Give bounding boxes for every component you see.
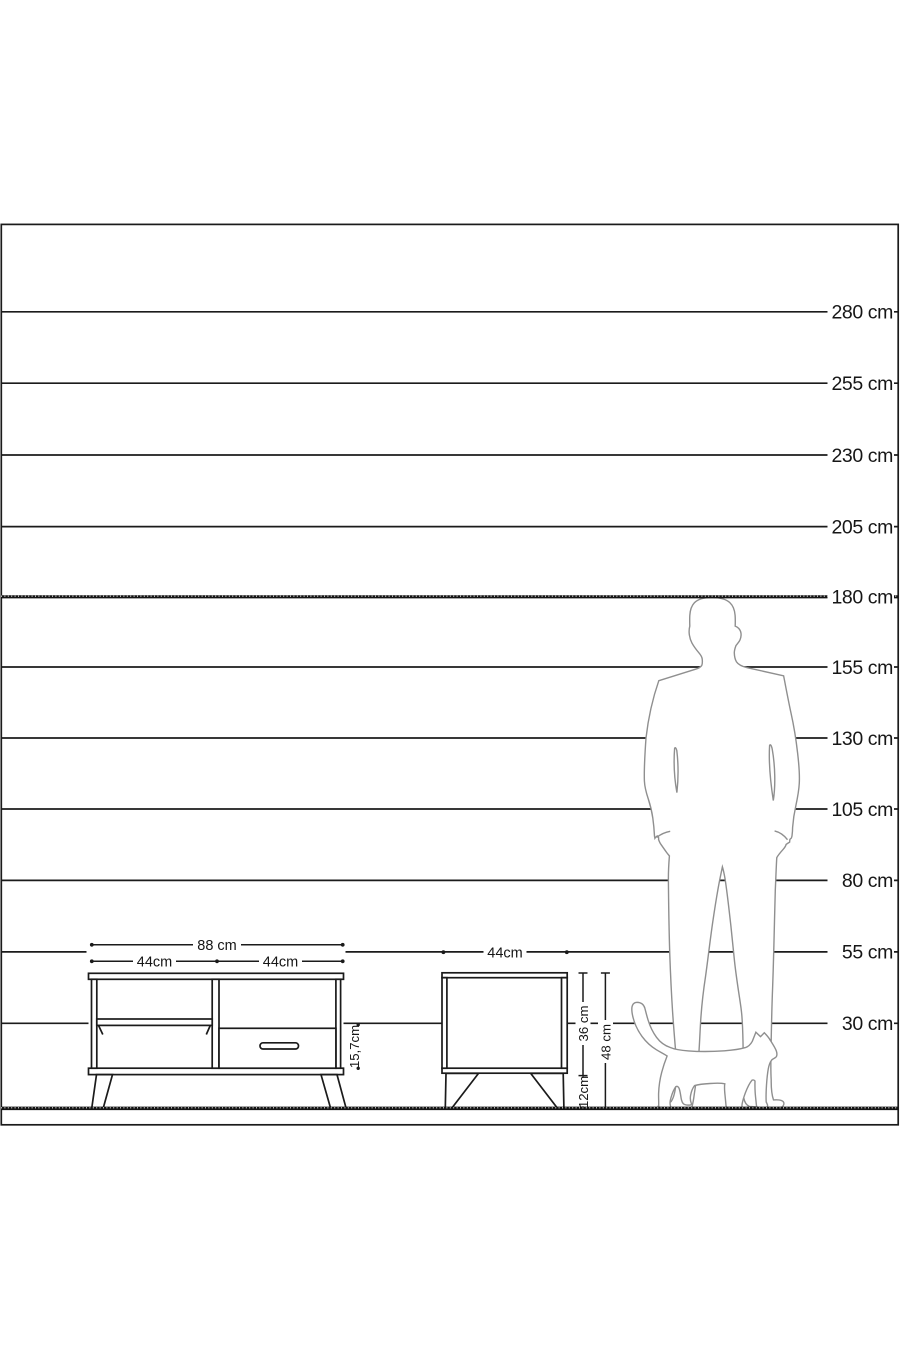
svg-text:55 cm: 55 cm bbox=[842, 942, 893, 964]
svg-text:130 cm: 130 cm bbox=[831, 728, 893, 750]
svg-text:205 cm: 205 cm bbox=[831, 516, 893, 538]
svg-text:44cm: 44cm bbox=[263, 954, 298, 970]
svg-text:30 cm: 30 cm bbox=[842, 1013, 893, 1035]
svg-text:80 cm: 80 cm bbox=[842, 870, 893, 892]
svg-text:36 cm: 36 cm bbox=[576, 1006, 591, 1042]
svg-text:44cm: 44cm bbox=[137, 954, 172, 970]
svg-text:15,7cm: 15,7cm bbox=[347, 1025, 362, 1068]
svg-text:255 cm: 255 cm bbox=[831, 373, 893, 395]
svg-text:230 cm: 230 cm bbox=[831, 445, 893, 467]
svg-text:180 cm: 180 cm bbox=[831, 587, 893, 609]
svg-text:44cm: 44cm bbox=[487, 945, 522, 961]
svg-text:155 cm: 155 cm bbox=[831, 657, 893, 679]
svg-text:88 cm: 88 cm bbox=[197, 938, 237, 954]
svg-text:280 cm: 280 cm bbox=[831, 302, 893, 324]
svg-text:12cm: 12cm bbox=[576, 1076, 591, 1108]
svg-text:48 cm: 48 cm bbox=[598, 1024, 613, 1060]
svg-text:105 cm: 105 cm bbox=[831, 799, 893, 821]
